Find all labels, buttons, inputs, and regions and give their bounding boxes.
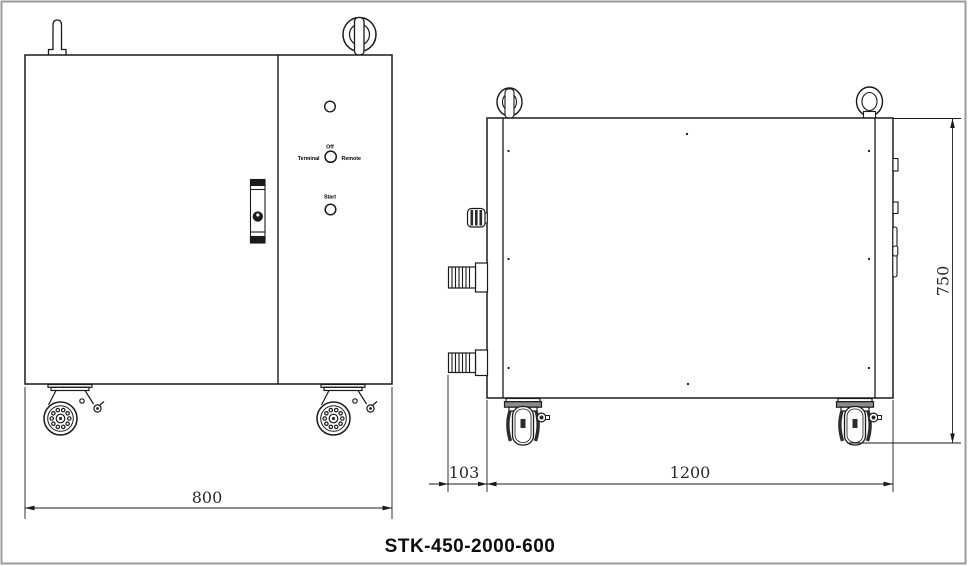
hose-barb-fitting-upper <box>449 263 488 292</box>
dimension-800-value: 800 <box>192 488 223 507</box>
front-caster-left <box>44 385 104 436</box>
drawing-canvas: Off Terminal Remote Start 800 <box>0 0 969 566</box>
side-view: 103 1200 750 <box>429 87 961 492</box>
front-caster-right <box>317 385 377 436</box>
dimension-1200-value: 1200 <box>670 463 711 482</box>
dimension-750-value: 750 <box>934 266 953 297</box>
front-lifting-eye-icon <box>343 18 376 56</box>
cap-fitting <box>468 209 488 228</box>
side-caster-right <box>837 399 882 446</box>
side-lifting-eye-right-icon <box>857 87 883 118</box>
side-caster-left <box>505 399 550 446</box>
door-handle <box>251 180 266 244</box>
drawing-title: STK-450-2000-600 <box>385 536 556 557</box>
side-cabinet-body <box>487 118 893 398</box>
front-cabinet-body <box>25 55 392 384</box>
front-view: Off Terminal Remote Start 800 <box>25 18 392 520</box>
technical-drawing-page: Off Terminal Remote Start 800 <box>0 0 969 566</box>
start-label: Start <box>324 195 336 201</box>
dimension-103-value: 103 <box>449 463 480 482</box>
selector-remote-label: Remote <box>342 156 361 162</box>
hose-barb-fitting-lower <box>449 350 488 376</box>
side-lifting-eye-left-icon <box>497 88 522 118</box>
front-lifting-lug <box>49 20 67 55</box>
selector-terminal-label: Terminal <box>298 156 320 162</box>
selector-off-label: Off <box>326 144 334 150</box>
